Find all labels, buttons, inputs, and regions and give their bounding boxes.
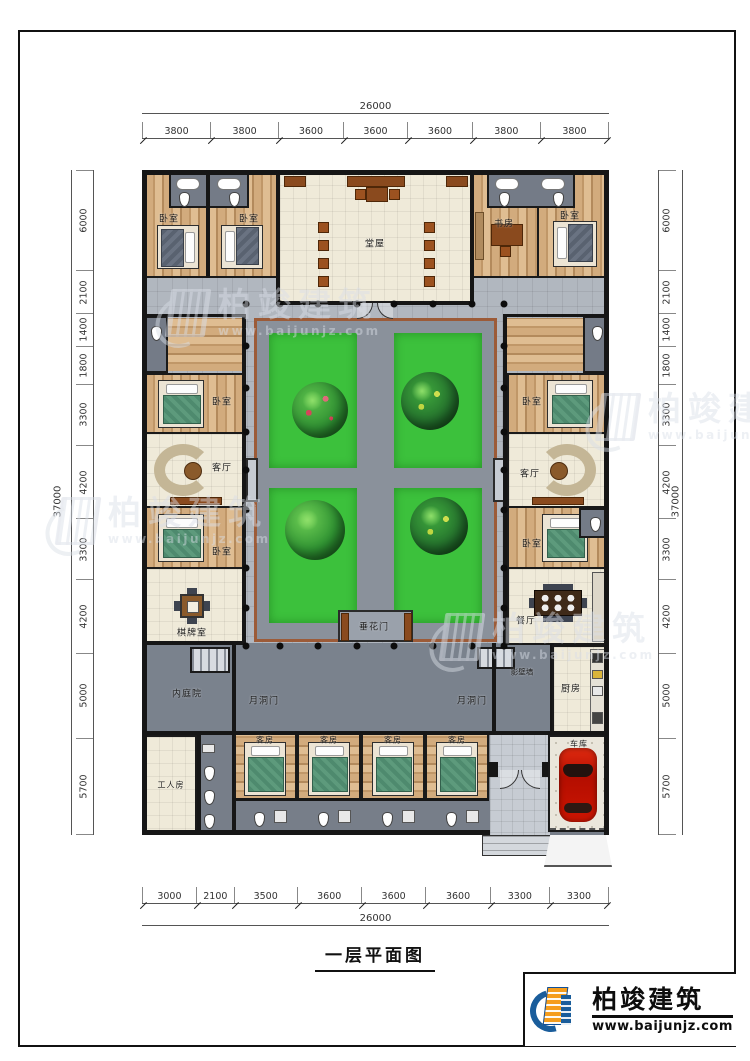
room-label-living: 客厅 [520, 467, 540, 480]
column [315, 301, 322, 308]
chair [424, 222, 435, 233]
column [243, 605, 250, 612]
chair [424, 240, 435, 251]
mahjong-table [180, 594, 204, 618]
dim-right-segments: 6000 2100 1400 1800 3300 4200 3300 4200 … [658, 170, 676, 835]
dim-segment: 3800 [210, 122, 278, 138]
column [391, 301, 398, 308]
wall [492, 643, 496, 733]
room-label-bedroom: 卧室 [159, 212, 179, 225]
column [501, 301, 508, 308]
room-label-inner-courtyard: 内庭院 [172, 687, 202, 700]
bed [372, 742, 414, 796]
tv-cabinet [532, 497, 584, 505]
bathtub [495, 178, 519, 190]
toilet [151, 326, 162, 341]
bookshelf [475, 212, 484, 260]
brand-logo-icon [528, 982, 584, 1038]
entrance-steps [482, 835, 558, 856]
wall [505, 314, 609, 317]
bathtub [541, 178, 565, 190]
bed [308, 742, 350, 796]
tree [285, 500, 345, 560]
wall [197, 733, 201, 835]
bed [553, 221, 597, 267]
toilet [229, 192, 240, 207]
drawing-title: 一层平面图 [0, 941, 750, 972]
tree [410, 497, 468, 555]
tea-table [550, 462, 568, 480]
ensuite-bathroom [579, 508, 607, 538]
column [430, 643, 437, 650]
column [315, 643, 322, 650]
dim-segment: 3300 [659, 384, 676, 445]
dim-segment: 3600 [343, 122, 408, 138]
entrance-passage [490, 733, 550, 835]
dim-segment: 4200 [76, 445, 93, 519]
side-cabinet [446, 176, 468, 187]
column [243, 565, 250, 572]
sink [202, 744, 215, 753]
room-label-guest: 客房 [256, 735, 274, 746]
dim-segment: 3500 [234, 887, 297, 903]
staircase [190, 647, 230, 673]
wall [470, 170, 474, 305]
dim-segment: 3300 [490, 887, 549, 903]
room-label-bedroom: 卧室 [522, 395, 542, 408]
column [243, 467, 250, 474]
dim-segment: 2100 [659, 270, 676, 313]
room-label-kitchen: 厨房 [561, 682, 581, 695]
altar-table [347, 176, 405, 187]
floorplan-page: 26000 3800 3800 3600 3600 3600 3800 3800… [0, 0, 750, 1061]
dim-segment: 3600 [297, 887, 361, 903]
column [391, 643, 398, 650]
column [501, 565, 508, 572]
dining-table [534, 590, 582, 616]
dim-top-total: 26000 [142, 96, 609, 114]
chair [318, 222, 329, 233]
tree [401, 372, 459, 430]
dim-segment: 5000 [76, 653, 93, 739]
column [277, 643, 284, 650]
dim-segment: 3300 [549, 887, 609, 903]
dim-segment: 3800 [472, 122, 540, 138]
column [501, 385, 508, 392]
wall [142, 731, 609, 735]
room-label-flower-gate: 垂花门 [359, 620, 389, 633]
gate-jamb [488, 762, 498, 777]
brand-url: www.baijunjz.com [592, 1015, 733, 1034]
dim-right-total-line [682, 170, 683, 835]
room-label-hall: 堂屋 [365, 237, 385, 250]
tea-table [184, 462, 202, 480]
toilet [499, 192, 510, 207]
shower [466, 810, 479, 823]
chair [318, 276, 329, 287]
toilet [553, 192, 564, 207]
column [354, 301, 361, 308]
wall [242, 314, 246, 644]
floor-plan: 卧室 卧室 堂屋 书房 卧室 卧室 卧室 客厅 客厅 卧室 卧室 棋牌室 餐厅 … [142, 170, 609, 835]
stove [592, 653, 603, 663]
column [430, 301, 437, 308]
shower [274, 810, 287, 823]
column [469, 643, 476, 650]
chair [424, 258, 435, 269]
dim-segment: 3600 [361, 887, 425, 903]
bed [158, 514, 204, 562]
column [243, 385, 250, 392]
wall [142, 830, 490, 835]
wall [142, 314, 246, 317]
bed [158, 380, 204, 428]
bed [547, 380, 593, 428]
room-label-moon-gate: 月洞门 [457, 694, 487, 707]
chair [355, 189, 366, 200]
column [501, 467, 508, 474]
bathtub [176, 178, 200, 190]
dim-bottom-segments: 3000 2100 3500 3600 3600 3600 3300 3300 [142, 887, 609, 904]
room-label-guest: 客房 [384, 735, 402, 746]
side-porch [246, 458, 258, 502]
gate-post [404, 613, 412, 641]
wall [206, 170, 210, 278]
driveway-ramp [544, 835, 612, 867]
column [501, 605, 508, 612]
room-label-guest: 客房 [320, 735, 338, 746]
side-cabinet [284, 176, 306, 187]
dim-segment: 6000 [76, 170, 93, 270]
dim-segment: 3000 [142, 887, 196, 903]
room-label-bedroom: 卧室 [560, 209, 580, 222]
wall [234, 798, 489, 801]
toilet [590, 517, 601, 532]
room-label-worker: 工人房 [158, 780, 185, 791]
bed [157, 225, 199, 269]
dim-segment: 5700 [76, 738, 93, 835]
bed [221, 225, 263, 269]
garage-door [550, 828, 605, 830]
wall [142, 170, 609, 175]
column [501, 343, 508, 350]
logo-block: 柏竣建筑 www.baijunjz.com [523, 972, 736, 1046]
dim-segment: 5700 [659, 738, 676, 835]
room-label-bedroom: 卧室 [522, 537, 542, 550]
wall [276, 170, 280, 305]
room-label-study: 书房 [494, 217, 514, 230]
sofa [154, 444, 212, 496]
wall [503, 314, 507, 644]
dim-segment: 4200 [659, 579, 676, 653]
column [469, 301, 476, 308]
chair [318, 258, 329, 269]
room-label-dining: 餐厅 [516, 614, 536, 627]
dim-segment: 3800 [540, 122, 609, 138]
column [243, 507, 250, 514]
wall [142, 641, 244, 645]
dim-segment: 1800 [76, 346, 93, 384]
dim-segment: 3300 [76, 384, 93, 445]
chair [500, 246, 511, 257]
chair [318, 240, 329, 251]
gate-post [341, 613, 349, 641]
dim-segment: 3600 [425, 887, 489, 903]
fridge [592, 712, 603, 724]
dim-segment: 3800 [142, 122, 210, 138]
room-label-screen-wall: 影壁墙 [511, 667, 534, 678]
bed [436, 742, 478, 796]
dim-segment: 3600 [407, 122, 472, 138]
tree [292, 382, 348, 438]
dim-segment: 6000 [659, 170, 676, 270]
dim-segment: 5000 [659, 653, 676, 739]
column [354, 643, 361, 650]
column [243, 343, 250, 350]
dim-segment: 3300 [76, 518, 93, 579]
dim-segment: 4200 [659, 445, 676, 519]
bed [244, 742, 286, 796]
shower [402, 810, 415, 823]
dim-left-total-line [71, 170, 72, 835]
dim-left-segments: 6000 2100 1400 1800 3300 4200 3300 4200 … [76, 170, 94, 835]
hall-table [366, 187, 388, 202]
column [277, 301, 284, 308]
column [243, 643, 250, 650]
room-label-guest: 客房 [448, 735, 466, 746]
dim-segment: 4200 [76, 579, 93, 653]
sink [592, 686, 603, 696]
room-label-mahjong: 棋牌室 [177, 626, 207, 639]
dim-bottom-total: 26000 [142, 908, 609, 926]
car [559, 748, 597, 822]
dim-segment: 1400 [76, 313, 93, 346]
bathroom-top-right [487, 172, 575, 208]
shower [338, 810, 351, 823]
column [243, 301, 250, 308]
chair [389, 189, 400, 200]
column [243, 429, 250, 436]
room-label-garage: 车库 [570, 739, 588, 750]
wall [142, 170, 147, 835]
chair [424, 276, 435, 287]
room-label-moon-gate: 月洞门 [249, 694, 279, 707]
bathtub [217, 178, 241, 190]
staircase [477, 647, 515, 669]
room-label-living: 客厅 [212, 461, 232, 474]
brand-name: 柏竣建筑 [592, 986, 733, 1014]
dim-segment: 3300 [659, 518, 676, 579]
wall [604, 170, 609, 835]
toilet [179, 192, 190, 207]
dim-segment: 3600 [278, 122, 343, 138]
column [501, 429, 508, 436]
tv-cabinet [170, 497, 222, 505]
room-label-bedroom: 卧室 [239, 212, 259, 225]
dim-segment: 2100 [196, 887, 234, 903]
room-label-bedroom: 卧室 [212, 545, 232, 558]
column [501, 643, 508, 650]
room-label-bedroom: 卧室 [212, 395, 232, 408]
logo-building-blue [561, 995, 571, 1025]
dim-top-segments: 3800 3800 3600 3600 3600 3800 3800 [142, 122, 609, 139]
dim-left-total: 37000 [52, 486, 63, 518]
cutting-board [592, 670, 603, 679]
toilet [592, 326, 603, 341]
dim-segment: 2100 [76, 270, 93, 313]
column [501, 507, 508, 514]
dim-segment: 1800 [659, 346, 676, 384]
dim-segment: 1400 [659, 313, 676, 346]
